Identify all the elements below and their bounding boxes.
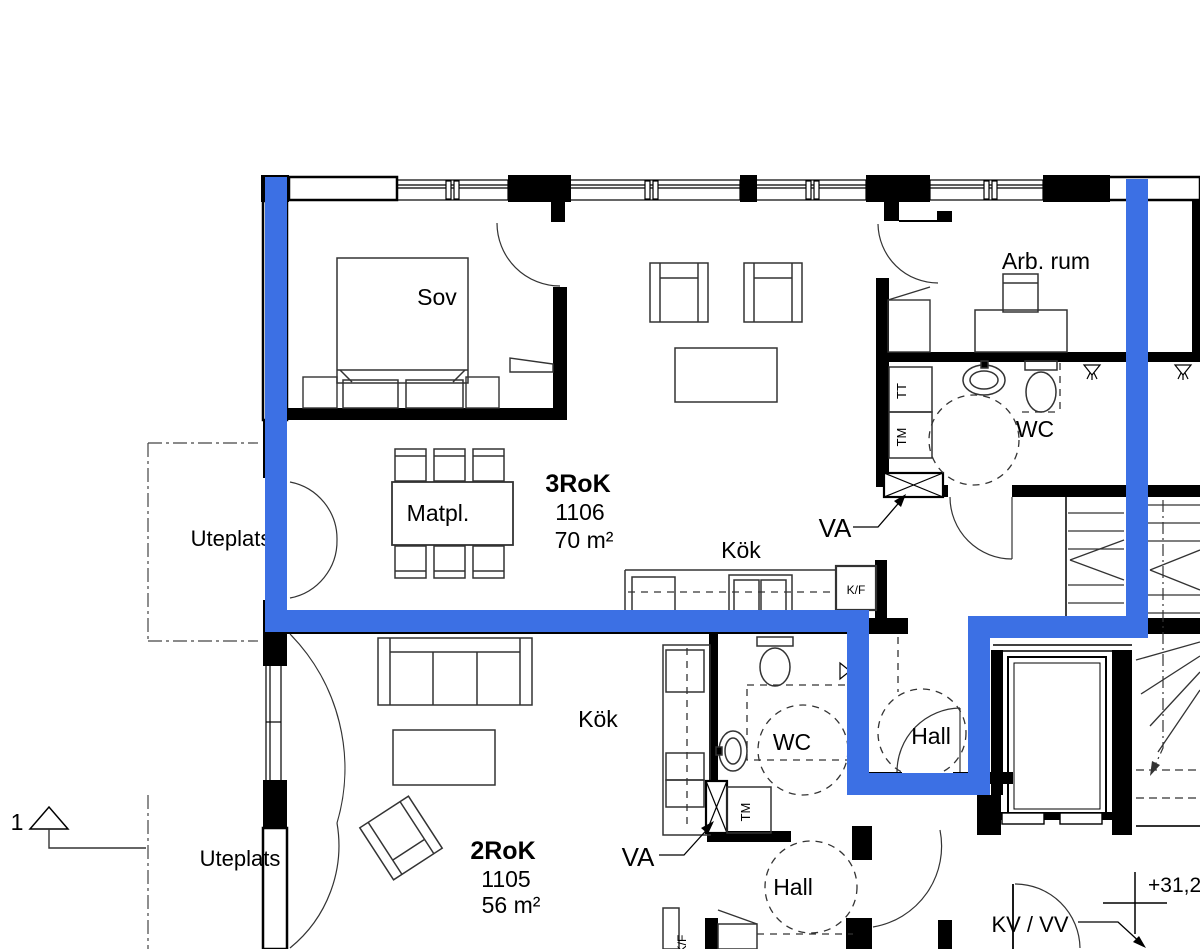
level-label: +31,2 xyxy=(1148,874,1200,897)
shaft-1106 xyxy=(884,473,943,497)
room-label-bedroom: Sov xyxy=(417,284,457,310)
room-label-wc-1105: WC xyxy=(773,729,811,755)
va-label-1106: VA xyxy=(819,513,852,543)
room-label-hall-1105: Hall xyxy=(773,874,813,900)
apartment-number-1105: 1105 xyxy=(481,866,530,892)
tt-label: TT xyxy=(894,383,909,399)
apartment-number-1106: 1106 xyxy=(555,499,604,525)
kvvv-label: KV / VV xyxy=(991,912,1068,937)
floor-plan-canvas: Sov Arb. rum WC Matpl. 3RoK 1106 70 m² K… xyxy=(0,0,1200,949)
room-label-wc-1106: WC xyxy=(1016,416,1054,442)
apartment-type-1105: 2RoK xyxy=(470,837,535,865)
apartment-type-1106: 3RoK xyxy=(545,470,610,498)
floor-plan-drawing: Sov Arb. rum WC Matpl. 3RoK 1106 70 m² K… xyxy=(0,0,1200,949)
room-label-kitchen-1105: Kök xyxy=(578,706,618,732)
tm-label-1106: TM xyxy=(894,428,909,447)
room-label-hall-1106: Hall xyxy=(911,723,951,749)
kf-label-1105: K/F xyxy=(675,935,689,949)
room-label-dining: Matpl. xyxy=(407,500,470,526)
va-label-1105: VA xyxy=(622,842,655,872)
patio-label-upper: Uteplats xyxy=(191,526,272,551)
apartment-area-1106: 70 m² xyxy=(555,527,614,553)
tm-label-1105: TM xyxy=(738,803,753,822)
room-label-kitchen-1106: Kök xyxy=(721,537,761,563)
patio-label-lower: Uteplats xyxy=(200,846,281,871)
room-label-workroom: Arb. rum xyxy=(1002,248,1090,274)
kf-label-1106: K/F xyxy=(847,583,866,597)
apartment-area-1105: 56 m² xyxy=(482,892,541,918)
section-number-label: 1 xyxy=(11,809,24,835)
